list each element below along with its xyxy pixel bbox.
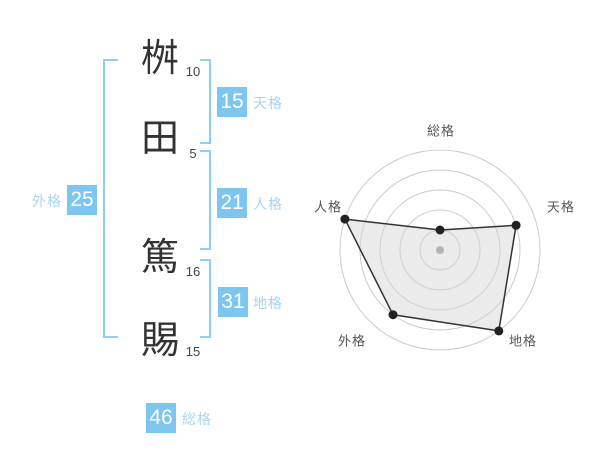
soukaku-value-badge: 46 [146,403,176,433]
radar-data-marker [340,215,349,224]
radar-data-marker [512,221,521,230]
gaikaku-bracket [103,59,118,338]
radar-center-dot [436,246,444,254]
name-character-2: 田 [140,120,180,158]
jinkaku-bracket [200,150,211,250]
stroke-count-2: 5 [184,146,202,161]
name-character-1: 桝 [140,40,180,78]
tenkaku-label: 天格 [253,96,283,110]
soukaku-label: 総格 [182,412,212,426]
gaikaku-value-badge: 25 [67,185,97,215]
chikaku-value-badge: 31 [218,287,248,317]
name-character-4: 賜 [140,322,180,360]
radar-data-marker [389,310,398,319]
stroke-count-4: 15 [184,344,202,359]
gaikaku-label: 外格 [30,194,62,208]
name-character-3: 篤 [140,239,180,277]
chikaku-label: 地格 [253,296,283,310]
stroke-count-1: 10 [184,64,202,79]
name-fortune-page: 桝 10 田 5 篤 16 賜 15 15 天格 21 人格 31 地格 25 … [0,0,600,470]
radar-axis-label: 総格 [427,124,455,139]
radar-data-marker [494,326,503,335]
jinkaku-label: 人格 [253,197,283,211]
radar-polygon [345,219,516,331]
radar-axis-label: 外格 [338,334,366,349]
radar-axis-label: 地格 [509,334,537,349]
radar-chart: 総格天格地格外格人格 [300,110,600,390]
stroke-count-3: 16 [184,264,202,279]
tenkaku-value-badge: 15 [217,87,247,117]
radar-axis-label: 天格 [547,200,575,215]
jinkaku-value-badge: 21 [217,188,247,218]
radar-data-marker [436,226,445,235]
radar-chart-area: 総格天格地格外格人格 [300,110,600,390]
radar-axis-label: 人格 [314,200,342,215]
